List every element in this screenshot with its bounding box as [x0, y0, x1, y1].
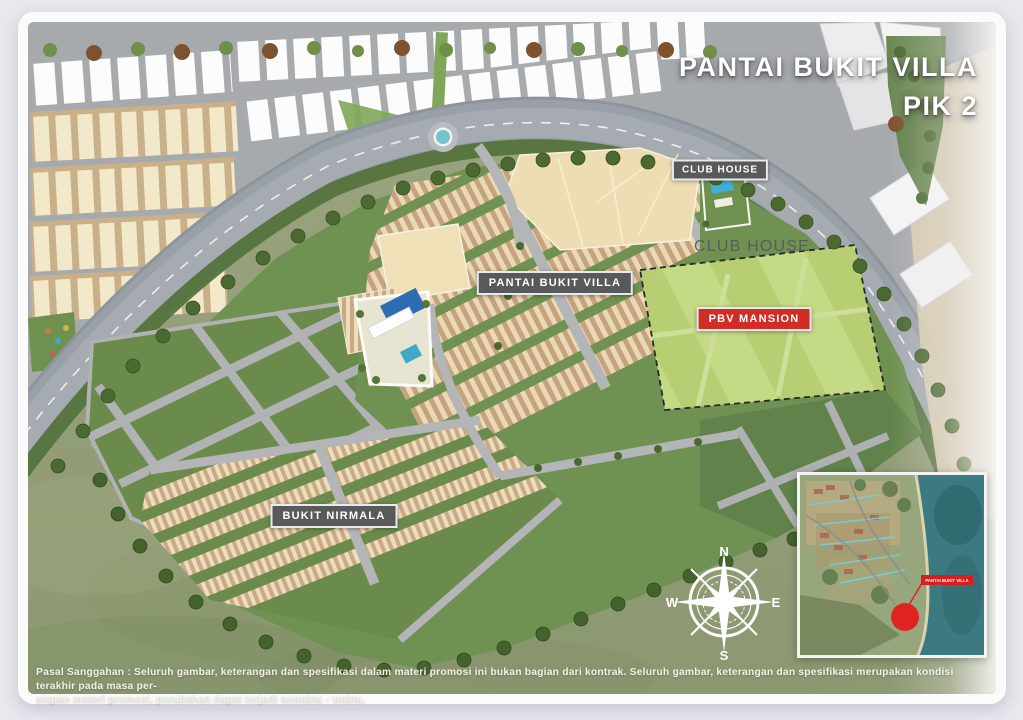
page-title-line1: PANTAI BUKIT VILLA [679, 48, 978, 87]
compass-west-label: W [666, 595, 679, 610]
compass-rose: N E S W [664, 540, 784, 664]
compass-east-label: E [772, 595, 781, 610]
pbv-mansion-badge: PBV MANSION [697, 307, 812, 331]
inset-sea [916, 475, 984, 655]
disclaimer-line2: siapan materi promosi, perubahan dapat t… [36, 693, 986, 707]
compass-north-label: N [719, 544, 728, 559]
inset-map-illustration: PANTAI BUKIT VILLA [800, 475, 984, 655]
site-plan-page: { "header": { "title_line1": "PANTAI BUK… [0, 0, 1023, 720]
disclaimer-line1: Pasal Sanggahan : Seluruh gambar, ketera… [36, 666, 986, 693]
location-marker-circle [891, 603, 919, 631]
inset-marker-label: PANTAI BUKIT VILLA [925, 578, 968, 583]
club-house-facility [355, 288, 432, 386]
club-house-area-text: CLUB HOUSE [694, 238, 810, 256]
compass-icon: N E S W [664, 540, 784, 664]
roundabout [428, 122, 458, 152]
disclaimer-text: Pasal Sanggahan : Seluruh gambar, ketera… [36, 666, 986, 707]
page-title: PANTAI BUKIT VILLA PIK 2 [679, 48, 978, 126]
bukit-nirmala-badge: BUKIT NIRMALA [271, 504, 398, 528]
pantai-bukit-villa-badge: PANTAI BUKIT VILLA [477, 271, 633, 295]
club-house-badge: CLUB HOUSE [672, 160, 768, 181]
page-title-line2: PIK 2 [679, 87, 978, 126]
location-inset-map: PANTAI BUKIT VILLA [797, 472, 987, 658]
compass-south-label: S [720, 648, 729, 663]
